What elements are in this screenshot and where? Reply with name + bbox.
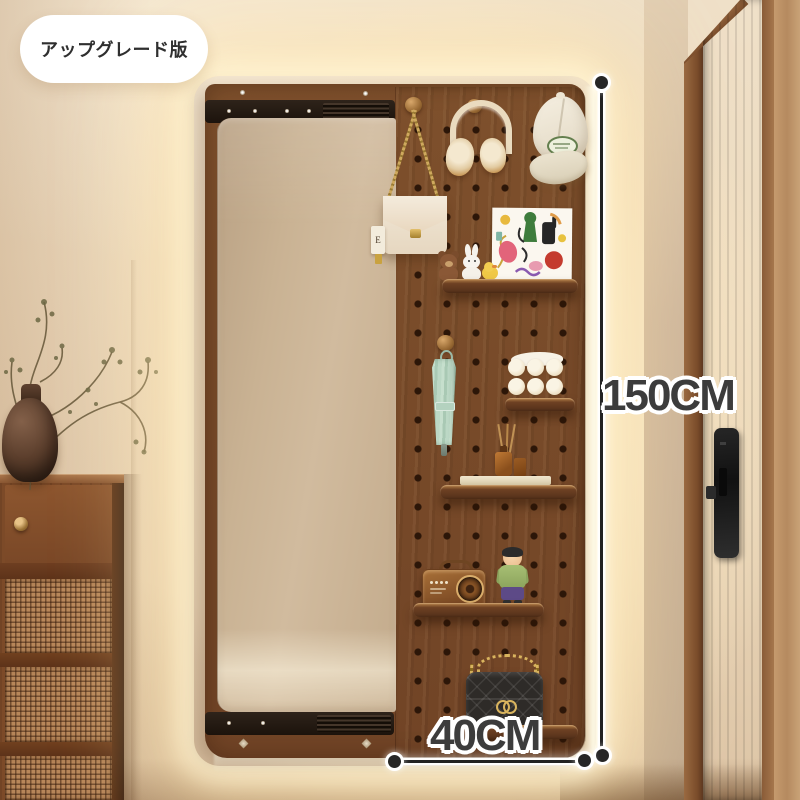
cabinet-drawer [5,485,115,565]
rail-bracket [279,105,317,117]
mount-screw [240,90,245,95]
cabinet-body [0,483,124,800]
patch-text-line [555,147,568,149]
lock-keypad [719,468,727,496]
product-photo-scene: E [0,0,800,800]
door-side-wall [774,0,800,800]
cabinet [0,474,124,800]
candle [546,359,563,376]
door-frame-right [762,0,774,800]
mirror-slide-rail-bottom [205,712,394,735]
badge-label: アップグレード版 [40,36,188,62]
incense-set [459,424,553,486]
radio-dial-dot [445,581,448,584]
rail-screw [227,109,231,113]
mount-screw [363,91,368,96]
umbrella [429,350,459,456]
candle [527,359,544,376]
rail-bracket [217,717,283,729]
cabinet-side-edge [112,483,124,800]
duck-figurine [482,262,498,280]
sliding-mirror [217,118,396,712]
headphones [443,100,509,176]
rail-screw [307,109,311,113]
smart-lock [714,428,739,558]
dimension-endpoint-dot [593,746,612,765]
vase [2,384,60,482]
cap-brim [528,147,591,189]
bunny-eye [468,260,470,262]
duck-beak [492,265,497,268]
dimension-endpoint-dot [575,751,594,770]
bunny-eye [474,260,476,262]
incense-bottle-small [514,458,526,476]
pegboard-shelf [413,603,544,617]
baseball-cap [530,92,594,192]
incense-tray [460,476,551,485]
cabinet-rattan-panel [5,756,112,800]
wooden-peg [437,335,454,351]
dimension-endpoint-dot [592,73,611,92]
rail-screw [261,721,265,725]
retro-radio [422,560,484,608]
cabinet-rail-bar [0,653,124,667]
bunny-figurine [460,244,483,281]
dimension-endpoint-dot [385,752,404,771]
rail-ribs [317,715,391,732]
bag-tag-letter: E [375,235,381,245]
crossbody-bag [383,196,447,254]
rail-screw [285,109,289,113]
candle [508,378,525,395]
lock-segment [720,442,726,445]
width-dimension-label: 40CM [430,714,539,758]
umbrella-tip [441,444,447,456]
art-print-graphic [492,208,573,283]
boy-figurine [497,547,528,606]
boy-shirt [499,565,526,589]
height-dimension-label: 150CM [602,374,734,418]
width-dimension-line [397,760,579,763]
radio-slit [430,588,446,590]
radio-speaker [456,575,484,603]
rail-screw [253,109,257,113]
candle [508,359,525,376]
pegboard-shelf [442,279,578,293]
drawer-knob [14,517,28,531]
bag-tag: E [371,226,385,254]
pegboard-shelf [505,398,575,411]
boy-hair [502,547,523,557]
bag-tag-clip [375,254,382,264]
radio-slit [430,592,442,594]
rail-screw [227,721,231,725]
upgrade-version-badge: アップグレード版 [20,15,208,83]
cabinet-rail-bar [0,563,124,579]
rail-bracket [219,105,265,117]
height-dimension-line [600,93,603,748]
vase-body [2,398,58,482]
pegboard-shelf [440,485,577,499]
lock-latch [706,486,716,499]
cabinet-rattan-panel [5,579,112,653]
cabinet-rattan-panel [5,667,112,742]
bag-clasp [410,229,421,238]
radio-dial-dot [435,581,438,584]
art-print [492,208,573,283]
cabinet-rail-bar [0,742,124,756]
candle [527,378,544,395]
radio-dial-dot [440,581,443,584]
patch-text-line [553,143,570,145]
candle [546,378,563,395]
umbrella-band [435,402,455,411]
radio-dial-dot [430,581,433,584]
bear-figurine [437,250,460,281]
incense-bottle [495,452,512,476]
boy-pants [501,587,524,600]
cabinet-wall-shadow [124,474,142,800]
candle-set [508,359,566,400]
